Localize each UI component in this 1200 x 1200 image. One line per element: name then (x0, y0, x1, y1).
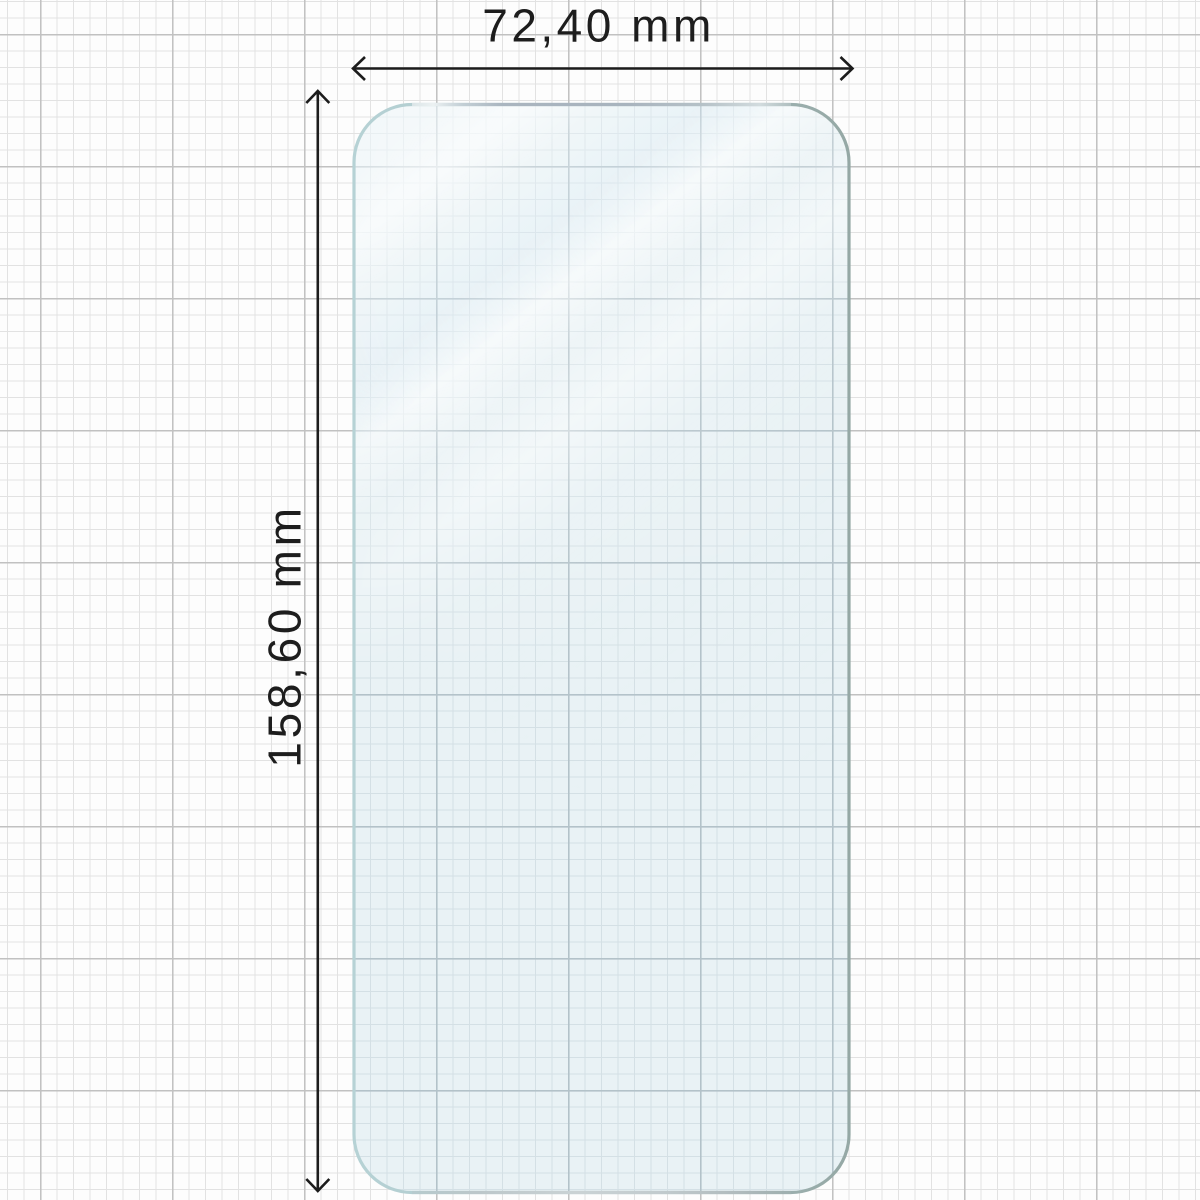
svg-text:158,60 mm: 158,60 mm (259, 504, 311, 767)
svg-text:72,40 mm: 72,40 mm (482, 0, 715, 52)
